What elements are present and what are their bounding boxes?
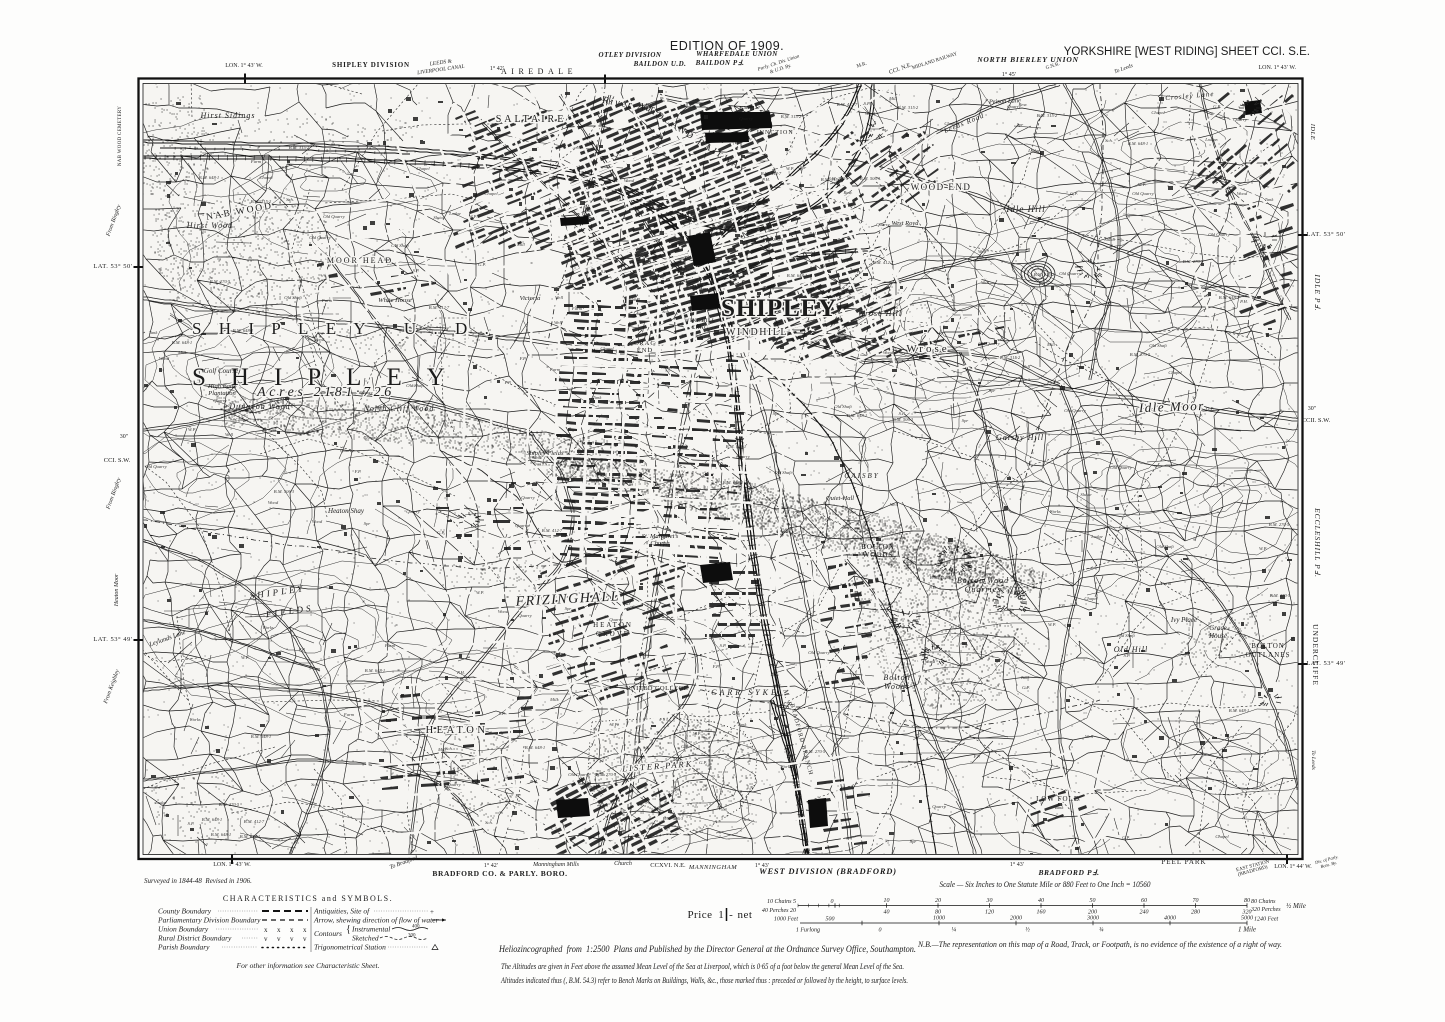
svg-text:Contours: Contours	[314, 929, 342, 938]
svg-text:Well: Well	[555, 295, 564, 300]
svg-text:Mill: Mill	[1046, 342, 1055, 347]
svg-text:1° 45′: 1° 45′	[1002, 71, 1017, 78]
svg-text:Chapel: Chapel	[259, 175, 273, 180]
svg-text:Works: Works	[1049, 509, 1061, 514]
svg-text:Sketched: Sketched	[352, 934, 379, 943]
svg-text:B.M. 648·1: B.M. 648·1	[172, 340, 192, 345]
svg-text:LON. 1° 43′ W.: LON. 1° 43′ W.	[1258, 64, 1296, 71]
svg-text:F.P.: F.P.	[973, 754, 981, 759]
svg-text:SHIPLEY DIVISION: SHIPLEY DIVISION	[332, 61, 410, 69]
svg-text:Farm: Farm	[1160, 581, 1172, 586]
svg-text:Tank: Tank	[881, 602, 891, 607]
svg-text:W.P.: W.P.	[1138, 182, 1146, 187]
svg-text:Lodge: Lodge	[902, 559, 914, 564]
svg-text:Quarry: Quarry	[213, 398, 227, 403]
svg-text:G.P.: G.P.	[1022, 685, 1030, 690]
svg-text:Old Shaft: Old Shaft	[1149, 343, 1167, 348]
svg-text:v: v	[290, 935, 294, 943]
svg-text:30: 30	[986, 898, 993, 904]
svg-text:Tank: Tank	[149, 330, 159, 335]
svg-text:Spr: Spr	[989, 388, 996, 393]
svg-text:B.M. 648·1: B.M. 648·1	[365, 668, 385, 673]
svg-text:W.P.: W.P.	[610, 722, 618, 727]
svg-text:1° 42′: 1° 42′	[484, 862, 499, 869]
svg-text:BOLTON: BOLTON	[1251, 642, 1285, 650]
svg-text:W.P.: W.P.	[1048, 622, 1056, 627]
svg-text:Chapel: Chapel	[944, 121, 958, 126]
svg-text:Spr: Spr	[565, 606, 572, 611]
svg-text:Farm: Farm	[549, 367, 561, 372]
svg-text:LON. 1° 43′ W.: LON. 1° 43′ W.	[213, 861, 251, 868]
svg-text:Resr.: Resr.	[458, 677, 468, 682]
svg-text:G.P.: G.P.	[1195, 413, 1203, 418]
svg-text:SALTAIRE: SALTAIRE	[496, 114, 567, 125]
svg-text:Wrose Hill: Wrose Hill	[858, 309, 902, 318]
svg-text:Chapel: Chapel	[1151, 110, 1165, 115]
svg-text:½: ½	[1025, 927, 1030, 934]
svg-text:Trigonometrical Station: Trigonometrical Station	[314, 943, 386, 952]
svg-text:Parish Boundary: Parish Boundary	[157, 943, 210, 952]
svg-text:G.P.: G.P.	[1206, 406, 1214, 411]
svg-text:BRADFORD CO. & PARLY. BORO.: BRADFORD CO. & PARLY. BORO.	[432, 869, 567, 878]
svg-text:Mill: Mill	[1030, 823, 1039, 828]
svg-text:Mill: Mill	[516, 242, 525, 247]
svg-text:B.M. 506·3: B.M. 506·3	[274, 489, 295, 494]
svg-text:Quarry: Quarry	[876, 222, 890, 227]
svg-text:IDLE: IDLE	[1309, 123, 1316, 140]
svg-text:Bolton Wood: Bolton Wood	[957, 576, 1009, 585]
svg-text:Union Boundary: Union Boundary	[158, 925, 209, 934]
svg-text:CRAG: CRAG	[691, 325, 708, 331]
svg-text:BAILDON PℲ.: BAILDON PℲ.	[695, 59, 745, 67]
svg-text:Quarry: Quarry	[932, 804, 946, 809]
svg-text:W.P.: W.P.	[469, 214, 477, 219]
svg-text:Mill: Mill	[437, 747, 446, 752]
svg-text:W.P.: W.P.	[476, 590, 484, 595]
svg-text:North Cliff Wood: North Cliff Wood	[363, 404, 435, 413]
svg-text:P.H.: P.H.	[456, 670, 465, 675]
svg-text:Mill: Mill	[177, 350, 186, 355]
svg-text:Quarry: Quarry	[609, 617, 623, 622]
svg-text:Plantation: Plantation	[207, 390, 235, 397]
svg-text:Wood: Wood	[925, 659, 936, 664]
svg-text:Mill: Mill	[549, 697, 558, 702]
svg-text:OTLEY DIVISION: OTLEY DIVISION	[599, 51, 662, 59]
svg-text:Wood: Wood	[883, 350, 894, 355]
svg-text:B.M. 270·5: B.M. 270·5	[805, 749, 826, 754]
svg-text:S.P.: S.P.	[1124, 653, 1131, 658]
svg-text:x: x	[290, 926, 294, 934]
svg-text:WEST DIVISION (BRADFORD): WEST DIVISION (BRADFORD)	[759, 866, 897, 876]
svg-text:LON. 1° 44′ W.: LON. 1° 44′ W.	[1274, 863, 1312, 870]
svg-text:Arrow, shewing direction of fl: Arrow, shewing direction of flow of wate…	[313, 916, 439, 925]
svg-text:The Altitudes are given in Fee: The Altitudes are given in Feet above th…	[501, 962, 904, 971]
svg-text:Resr.: Resr.	[649, 456, 659, 461]
svg-text:W.P.: W.P.	[670, 473, 678, 478]
svg-text:1 Furlong: 1 Furlong	[796, 928, 820, 934]
svg-text:B.M. 648·1: B.M. 648·1	[240, 834, 260, 839]
svg-text:50: 50	[1090, 898, 1096, 904]
svg-text:Quiet-Hall: Quiet-Hall	[826, 495, 854, 502]
svg-text:Old Shaft: Old Shaft	[834, 404, 852, 409]
svg-text:W.P.: W.P.	[786, 166, 794, 171]
svg-text:Wood: Wood	[312, 519, 323, 524]
svg-text:Sluice: Sluice	[848, 163, 859, 168]
svg-text:Old Quarry: Old Quarry	[1064, 408, 1087, 413]
svg-text:x: x	[277, 926, 281, 934]
svg-text:S.P.: S.P.	[188, 821, 195, 826]
svg-text:S.P.: S.P.	[499, 711, 506, 716]
svg-text:PEEL PARK: PEEL PARK	[1161, 858, 1206, 866]
svg-text:Wood: Wood	[624, 178, 635, 183]
svg-text:Manningham Mills: Manningham Mills	[532, 862, 579, 868]
svg-text:P.H.: P.H.	[529, 779, 538, 784]
svg-text:{: {	[346, 924, 351, 935]
svg-text:Idle Hill: Idle Hill	[1005, 204, 1045, 214]
svg-text:400: 400	[412, 925, 420, 930]
svg-text:Wood: Wood	[159, 356, 170, 361]
svg-text:Wood: Wood	[865, 111, 876, 116]
svg-text:Spr: Spr	[364, 521, 371, 526]
svg-text:S.P.: S.P.	[678, 266, 685, 271]
svg-text:Tank: Tank	[1055, 805, 1065, 810]
svg-text:Heaton Moor: Heaton Moor	[114, 573, 120, 607]
svg-text:Wood: Wood	[961, 662, 972, 667]
svg-text:-: -	[729, 909, 733, 921]
svg-text:Scale — Six Inches to One Stat: Scale — Six Inches to One Statute Mile o…	[940, 879, 1152, 889]
svg-text:320 Perches: 320 Perches	[1250, 907, 1281, 913]
svg-text:Quarry: Quarry	[447, 782, 461, 787]
svg-text:Chapel: Chapel	[979, 571, 993, 576]
svg-text:B.M. 270·5: B.M. 270·5	[1270, 593, 1291, 598]
svg-text:F.P.: F.P.	[298, 647, 306, 652]
svg-text:Chapel: Chapel	[600, 346, 614, 351]
svg-text:2000: 2000	[1010, 916, 1022, 922]
svg-text:P.H.: P.H.	[1239, 299, 1248, 304]
svg-text:1 Mile: 1 Mile	[1238, 926, 1256, 934]
svg-text:B.M. 648·1: B.M. 648·1	[211, 832, 231, 837]
svg-text:70: 70	[1193, 898, 1199, 904]
svg-text:F.P.: F.P.	[792, 510, 800, 515]
svg-text:Old Quarry: Old Quarry	[978, 341, 1001, 346]
svg-text:CCII. S.W.: CCII. S.W.	[1302, 417, 1331, 424]
svg-text:Spr: Spr	[1065, 292, 1072, 297]
svg-text:Old Quarry: Old Quarry	[323, 214, 346, 219]
svg-text:1000 Feet: 1000 Feet	[774, 917, 798, 923]
svg-text:10 Chains 5: 10 Chains 5	[767, 899, 796, 905]
svg-text:500: 500	[826, 917, 835, 923]
svg-text:Altitudes indicated thus (, B.: Altitudes indicated thus (, B.M. 54.3) r…	[500, 976, 908, 985]
svg-text:B.M. 648·1: B.M. 648·1	[251, 734, 271, 739]
svg-text:20: 20	[935, 898, 941, 904]
svg-text:Old Shaft: Old Shaft	[406, 383, 424, 388]
svg-text:Sch.: Sch.	[286, 197, 294, 202]
svg-text:Old Quarry: Old Quarry	[145, 464, 168, 469]
svg-text:WHARFEDALE UNION: WHARFEDALE UNION	[696, 50, 778, 58]
svg-text:B.M. 412·7: B.M. 412·7	[429, 305, 450, 310]
svg-text:County Boundary: County Boundary	[158, 907, 212, 916]
svg-text:G.P.: G.P.	[681, 744, 689, 749]
svg-text:F.P.: F.P.	[354, 469, 362, 474]
svg-text:B.M. 270·5: B.M. 270·5	[219, 802, 240, 807]
svg-text:SHIPLEY: SHIPLEY	[721, 293, 837, 322]
svg-text:House: House	[1208, 632, 1227, 640]
svg-text:B.M. 270·5: B.M. 270·5	[763, 237, 784, 242]
svg-text:B.M. 315·2: B.M. 315·2	[781, 114, 802, 119]
svg-text:W.P.: W.P.	[241, 655, 249, 660]
svg-text:NAB WOOD CEMETERY: NAB WOOD CEMETERY	[118, 106, 123, 166]
svg-text:B.M. 506·3: B.M. 506·3	[893, 417, 914, 422]
svg-text:JUNCTION: JUNCTION	[756, 130, 793, 136]
svg-text:Old Quarry: Old Quarry	[309, 235, 332, 240]
svg-text:G.P.: G.P.	[699, 760, 707, 765]
svg-text:Lodge: Lodge	[1204, 137, 1216, 142]
svg-text:Farm: Farm	[695, 286, 707, 291]
svg-text:AIREDALE: AIREDALE	[501, 67, 577, 76]
svg-text:Sch.: Sch.	[662, 309, 670, 314]
svg-text:Old Shaft: Old Shaft	[1117, 633, 1135, 638]
svg-text:Hirst Sidings: Hirst Sidings	[199, 111, 255, 120]
svg-text:Gaisby Hill: Gaisby Hill	[996, 433, 1044, 442]
svg-text:B.M. 412·7: B.M. 412·7	[930, 575, 951, 580]
svg-text:B.M. 412·7: B.M. 412·7	[244, 819, 265, 824]
svg-text:Quarry: Quarry	[1233, 117, 1247, 122]
svg-text:B.M. 648·1: B.M. 648·1	[1128, 141, 1148, 146]
svg-text:Farm: Farm	[321, 298, 333, 303]
svg-text:St. Margaret’s: St. Margaret’s	[642, 533, 679, 540]
svg-text:P.H.: P.H.	[808, 231, 817, 236]
svg-text:Well: Well	[1022, 364, 1031, 369]
svg-text:Spr: Spr	[800, 165, 807, 170]
svg-text:OUTLANES: OUTLANES	[1246, 651, 1291, 659]
svg-text:B.M. 648·1: B.M. 648·1	[525, 745, 545, 750]
svg-text:Church: Church	[614, 861, 632, 867]
svg-text:IDLE PℲ.: IDLE PℲ.	[1313, 273, 1322, 311]
svg-text:Dungeon Wood: Dungeon Wood	[228, 402, 290, 411]
svg-text:END: END	[637, 347, 653, 354]
svg-text:40: 40	[884, 909, 890, 916]
svg-text:Well: Well	[978, 249, 987, 254]
svg-text:B.M. 412·7: B.M. 412·7	[542, 528, 563, 533]
svg-text:v: v	[303, 935, 307, 943]
svg-text:W.P.: W.P.	[280, 165, 288, 170]
svg-text:BAILDON U.D.: BAILDON U.D.	[633, 60, 687, 68]
svg-text:BOLTON: BOLTON	[861, 543, 895, 551]
svg-text:S.P.: S.P.	[899, 411, 906, 416]
svg-text:1240 Feet: 1240 Feet	[1254, 916, 1278, 923]
svg-text:Well: Well	[733, 481, 742, 486]
svg-text:160: 160	[1037, 910, 1046, 916]
svg-text:CRAG: CRAG	[634, 340, 656, 347]
svg-text:WINDHILL: WINDHILL	[726, 327, 788, 338]
svg-text:10: 10	[884, 898, 890, 904]
svg-text:Old Quarry: Old Quarry	[568, 772, 591, 777]
svg-text:280: 280	[1191, 910, 1200, 916]
svg-text:Rural District Boundary: Rural District Boundary	[157, 934, 232, 943]
svg-text:West Royd: West Royd	[891, 220, 919, 227]
svg-text:Old Quarry: Old Quarry	[1208, 232, 1231, 237]
svg-text:60: 60	[1141, 898, 1147, 904]
svg-text:F.P.: F.P.	[519, 356, 527, 361]
svg-text:Sch.: Sch.	[743, 817, 751, 822]
svg-text:P.H.: P.H.	[761, 177, 770, 182]
svg-text:Tank: Tank	[1021, 675, 1031, 680]
svg-text:B.M. 648·1: B.M. 648·1	[1229, 708, 1249, 713]
svg-text:Wood: Wood	[314, 337, 325, 342]
svg-text:x: x	[303, 926, 307, 934]
svg-text:Sluice: Sluice	[1104, 237, 1115, 242]
svg-text:F.P.: F.P.	[504, 380, 512, 385]
svg-text:80 Chains: 80 Chains	[1251, 899, 1276, 905]
svg-text:HEATON: HEATON	[426, 725, 489, 736]
svg-text:Old Shaft: Old Shaft	[284, 295, 302, 300]
svg-text:Sluice: Sluice	[661, 365, 672, 370]
svg-text:G.P.: G.P.	[478, 262, 486, 267]
svg-text:White House: White House	[378, 297, 412, 304]
svg-text:Quarry: Quarry	[739, 116, 753, 121]
svg-text:Parliamentary Division Boundar: Parliamentary Division Boundary	[157, 916, 261, 925]
svg-text:Lodge: Lodge	[1027, 148, 1039, 153]
svg-text:S.P.: S.P.	[413, 268, 420, 273]
svg-text:Quarries: Quarries	[965, 585, 1002, 594]
svg-text:N.B.—The representation on thi: N.B.—The representation on this map of a…	[917, 939, 1282, 949]
svg-text:120: 120	[985, 910, 994, 916]
svg-text:F.P.: F.P.	[1058, 603, 1066, 608]
svg-text:WOODS: WOODS	[863, 551, 894, 559]
svg-text:B.M. 648·1: B.M. 648·1	[199, 175, 219, 180]
svg-text:Spr: Spr	[773, 411, 780, 416]
svg-text:W.P.: W.P.	[693, 731, 701, 736]
svg-text:NORTH BIERLEY UNION: NORTH BIERLEY UNION	[976, 55, 1079, 64]
svg-text:0: 0	[831, 899, 834, 905]
svg-text:Ivy Place: Ivy Place	[1170, 616, 1197, 624]
svg-text:300: 300	[408, 934, 416, 939]
svg-text:Wrose: Wrose	[906, 343, 949, 355]
svg-text:Instrumental: Instrumental	[351, 925, 390, 934]
svg-text:S.P.: S.P.	[749, 262, 756, 267]
svg-text:Chapel: Chapel	[363, 435, 377, 440]
svg-text:3000: 3000	[1086, 916, 1099, 922]
svg-text:0: 0	[879, 928, 882, 934]
svg-text:Lodge: Lodge	[448, 211, 460, 216]
svg-text:Woods: Woods	[884, 682, 910, 691]
svg-text:Mill: Mill	[798, 579, 807, 584]
svg-text:B.M. 270·5: B.M. 270·5	[596, 772, 617, 777]
svg-text:S.P.: S.P.	[720, 643, 727, 648]
svg-text:30′′: 30′′	[1308, 406, 1317, 412]
svg-text:GROVE: GROVE	[596, 630, 630, 638]
svg-text:1: 1	[718, 909, 724, 921]
svg-text:Quarry: Quarry	[736, 454, 750, 459]
svg-text:B.M. 270·5: B.M. 270·5	[828, 176, 849, 181]
svg-text:B.M. 412·7: B.M. 412·7	[873, 260, 894, 265]
svg-text:F.P.: F.P.	[712, 664, 720, 669]
svg-text:Old Quarry: Old Quarry	[1059, 271, 1082, 276]
svg-text:Lodge: Lodge	[632, 311, 644, 316]
svg-text:Chapel: Chapel	[1084, 596, 1098, 601]
svg-text:Spr: Spr	[910, 839, 917, 844]
svg-text:W.P.: W.P.	[188, 427, 196, 432]
svg-text:B.M. 648·1: B.M. 648·1	[726, 444, 746, 449]
svg-text:Well: Well	[890, 502, 899, 507]
svg-text:B.M. 270·5: B.M. 270·5	[1130, 352, 1151, 357]
svg-text:B.M. 270·5: B.M. 270·5	[1269, 522, 1290, 527]
svg-text:Church: Church	[650, 540, 669, 547]
svg-text:4000: 4000	[1164, 915, 1176, 922]
svg-text:Mill: Mill	[888, 96, 897, 101]
svg-text:B.M. 315·2: B.M. 315·2	[1034, 272, 1055, 277]
svg-text:B.M. 315·2: B.M. 315·2	[1000, 355, 1021, 360]
svg-text:Golf Course: Golf Course	[204, 367, 238, 375]
svg-text:BRADFORD PℲ.: BRADFORD PℲ.	[1037, 868, 1099, 877]
svg-text:Quarry: Quarry	[359, 390, 373, 395]
svg-text:40 Perches 20: 40 Perches 20	[762, 907, 796, 914]
svg-text:HEATON: HEATON	[593, 621, 633, 629]
svg-text:B.M. 270·5: B.M. 270·5	[601, 197, 622, 202]
svg-text:Hirst Wood: Hirst Wood	[186, 221, 233, 230]
svg-text:G.P.: G.P.	[1213, 104, 1221, 109]
svg-text:Chapel: Chapel	[1215, 834, 1229, 839]
svg-text:Well: Well	[981, 280, 990, 285]
svg-text:G.P.: G.P.	[1122, 835, 1130, 840]
svg-text:Resr.: Resr.	[820, 263, 830, 268]
svg-text:Lodge: Lodge	[1090, 534, 1102, 539]
svg-text:Sch.: Sch.	[485, 820, 493, 825]
svg-text:CCI. S.W.: CCI. S.W.	[104, 457, 131, 464]
svg-text:80: 80	[1244, 898, 1250, 904]
svg-text:Price: Price	[687, 909, 712, 921]
svg-text:Wood: Wood	[1237, 191, 1248, 196]
svg-text:Quarry: Quarry	[1007, 104, 1021, 109]
svg-text:Spr: Spr	[1017, 122, 1024, 127]
svg-text:High Bank: High Bank	[207, 383, 236, 390]
svg-text:B.M. 315·2: B.M. 315·2	[898, 105, 919, 110]
svg-text:¼: ¼	[952, 928, 957, 934]
svg-text:5000: 5000	[1241, 916, 1253, 922]
svg-text:LON. 1° 43′ W.: LON. 1° 43′ W.	[225, 62, 263, 69]
svg-text:B.M. 648·1: B.M. 648·1	[202, 817, 222, 822]
svg-text:B.M. 270·5: B.M. 270·5	[210, 279, 231, 284]
svg-text:Well: Well	[533, 455, 542, 460]
svg-text:Antiquities, Site of: Antiquities, Site of	[313, 907, 370, 916]
svg-text:Farm: Farm	[250, 159, 262, 164]
svg-text:ECCLESHILL PℲ.: ECCLESHILL PℲ.	[1313, 507, 1322, 578]
svg-text:B.M. 648·1: B.M. 648·1	[233, 328, 253, 333]
svg-text:Tank: Tank	[1265, 197, 1275, 202]
svg-text:40: 40	[1038, 897, 1044, 904]
svg-text:Sluice: Sluice	[1080, 492, 1091, 497]
svg-text:Quarry: Quarry	[521, 495, 535, 500]
svg-text:Well: Well	[632, 297, 641, 302]
svg-text:Chapel: Chapel	[416, 166, 430, 171]
svg-text:Farm: Farm	[384, 643, 396, 648]
svg-text:B.M. 648·1: B.M. 648·1	[787, 273, 807, 278]
svg-text:Lodge: Lodge	[154, 800, 166, 805]
svg-text:S.P.: S.P.	[864, 101, 871, 106]
svg-text:Well: Well	[1085, 734, 1094, 739]
svg-text:S.P.: S.P.	[601, 269, 608, 274]
svg-text:¾: ¾	[1099, 928, 1104, 934]
svg-text:Resr.: Resr.	[842, 190, 852, 195]
svg-text:Chapel: Chapel	[484, 191, 498, 196]
svg-text:Quarry: Quarry	[340, 448, 354, 453]
svg-text:Chapel: Chapel	[235, 417, 249, 422]
svg-text:B.M. 648·1: B.M. 648·1	[1219, 295, 1239, 300]
svg-text:Bolton: Bolton	[883, 673, 910, 682]
svg-text:B.M. 506·3: B.M. 506·3	[663, 816, 684, 821]
svg-text:1° 43′: 1° 43′	[1010, 861, 1025, 868]
svg-text:1000: 1000	[933, 916, 945, 922]
